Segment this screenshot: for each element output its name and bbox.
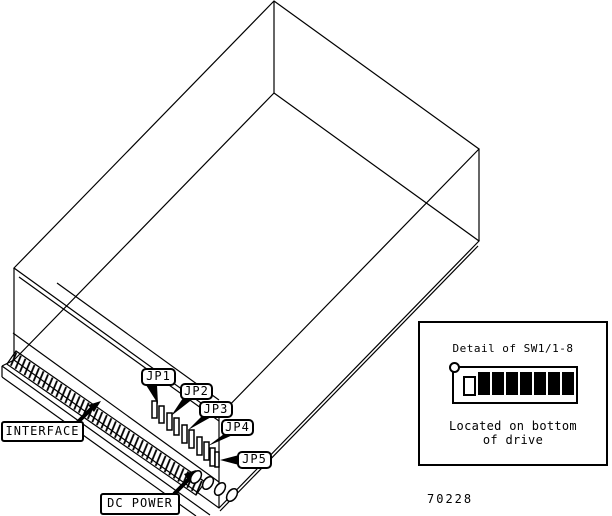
callout-jp4: JP4 [221,419,254,436]
interface-label: INTERFACE [1,421,84,442]
drive-top-face [14,1,479,416]
jp2-pins [167,413,179,435]
callout-jp3: JP3 [199,401,233,418]
dip-switch-2-closed [478,372,490,395]
detail-inset-caption: Located on bottom of drive [418,419,608,447]
callout-jp2: JP2 [180,383,213,400]
dip-switch-4-closed [506,372,518,395]
hard-drive-jumper-diagram: JP1 JP2 JP3 JP4 JP5 INTERFACE DC POWER D… [0,0,612,516]
detail-inset-title: Detail of SW1/1-8 [418,342,608,355]
callout-jp5: JP5 [237,451,272,469]
dip-switch-row [452,366,578,404]
jp3-pointer [188,416,213,430]
jp5-pins [210,448,219,467]
dip-switch-index-circle [449,362,460,373]
figure-number: 70228 [427,492,473,506]
dip-switch-5-closed [520,372,532,395]
dc-power-label: DC POWER [100,493,180,515]
jp4-pins [197,437,209,460]
caption-line-1: Located on bottom [418,419,608,433]
jp3-pins [182,425,194,448]
jp1-pins [152,401,164,423]
dip-switch-3-closed [492,372,504,395]
dip-switch-6-closed [534,372,546,395]
dip-switch-8-closed [562,372,574,395]
dip-switch-1-open [463,376,476,396]
dip-switch-7-closed [548,372,560,395]
drive-bottom-face [14,93,479,508]
caption-line-2: of drive [418,433,608,447]
callout-jp1: JP1 [141,368,176,386]
